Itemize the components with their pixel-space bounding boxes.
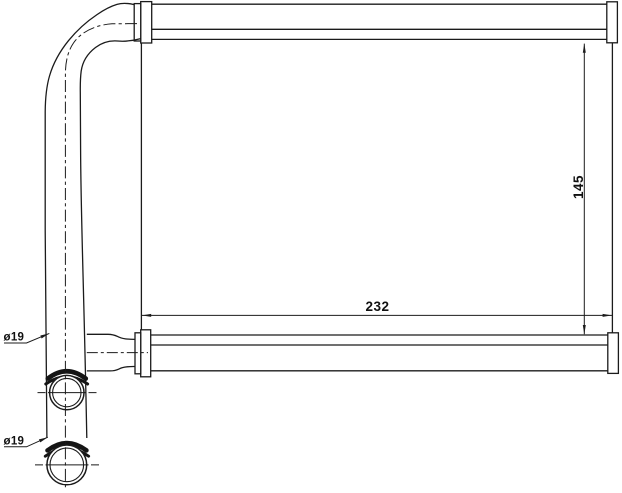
outlet-pipe-bottom-edge: [87, 366, 135, 370]
bottom-pipe-collar-outer: [141, 330, 151, 377]
top-header-tank: [134, 2, 617, 43]
leader-top-arrow: [40, 333, 49, 338]
dim-232-arrow-left: [142, 314, 151, 317]
technical-drawing: 145 232 ø19 ø19: [0, 0, 622, 493]
hose-centerline: [65, 24, 137, 489]
top-tank-end-cap: [607, 2, 618, 43]
dimension-145: 145: [571, 43, 586, 334]
dim-145-label: 145: [571, 175, 586, 199]
leader-diameter-bottom: ø19: [4, 435, 48, 447]
bottom-header-tank: [135, 330, 618, 377]
top-hose-collar-outer: [141, 2, 152, 43]
leader-diameter-top: ø19: [4, 332, 50, 344]
dim-232-label: 232: [365, 299, 389, 314]
bottom-tank-end-cap: [608, 333, 619, 374]
dimension-232: 232: [142, 299, 613, 317]
dim-145-arrow-down: [583, 325, 586, 334]
leader-bottom-label: ø19: [4, 435, 25, 447]
drawing-svg: 145 232 ø19 ø19: [0, 0, 622, 493]
dim-232-arrow-right: [603, 314, 612, 317]
top-hose-collar-ring: [134, 4, 141, 41]
pipe-end-opening-2: [35, 443, 99, 485]
dim-145-arrow-up: [583, 43, 586, 52]
outlet-pipe-top-edge: [87, 334, 135, 339]
inlet-hose-inner-edge: [80, 39, 140, 438]
leader-bottom-arrow: [39, 437, 48, 442]
bottom-pipe-collar-ring: [135, 333, 141, 374]
leader-top-label: ø19: [4, 332, 25, 344]
